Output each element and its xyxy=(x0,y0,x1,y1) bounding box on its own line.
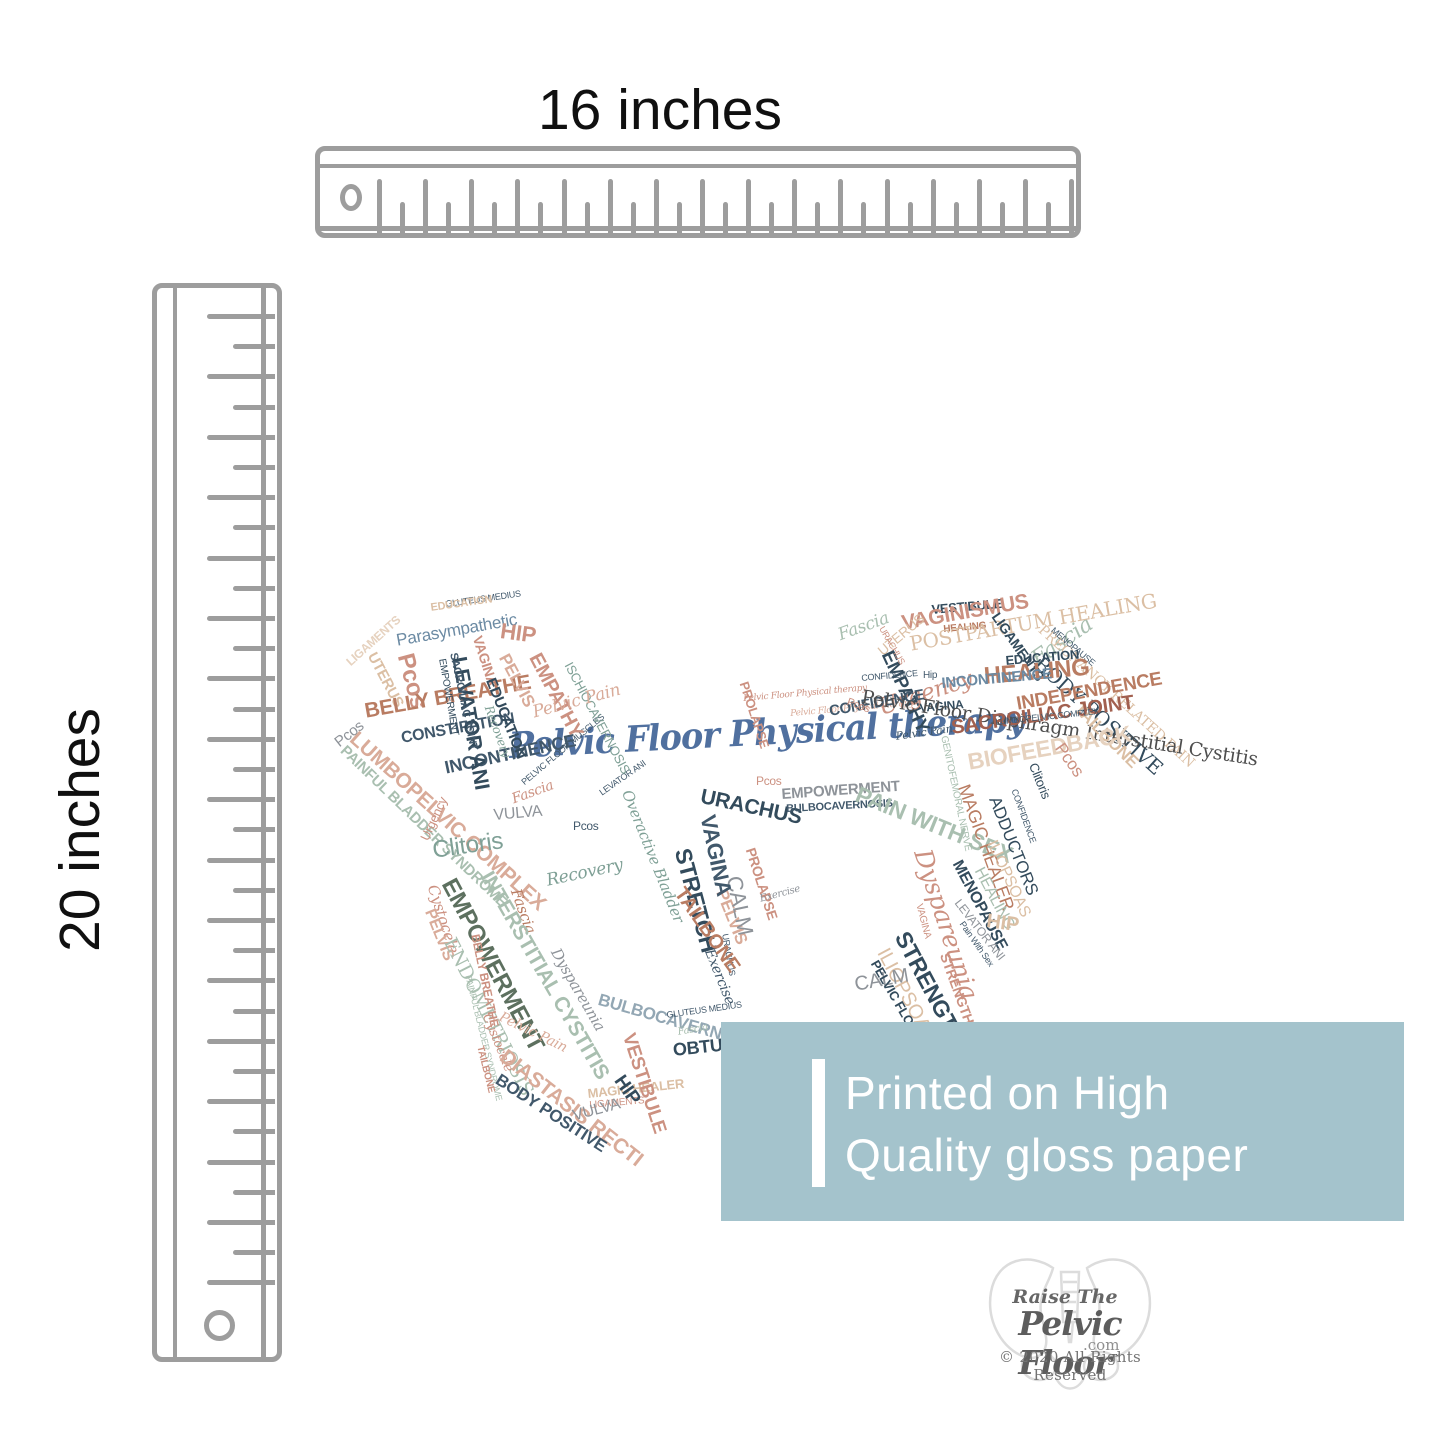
height-dimension-label: 20 inches xyxy=(52,708,109,952)
ruler-tick xyxy=(1000,202,1005,237)
product-size-guide: 16 inches 20 inches Pelvic Floor Physica… xyxy=(0,0,1445,1445)
banner-text: Printed on High Quality gloss paper xyxy=(845,1062,1248,1186)
ruler-rail-line xyxy=(320,226,1076,231)
ruler-tick xyxy=(631,202,636,237)
cloud-word: EDUCATION xyxy=(430,594,493,614)
ruler-tick xyxy=(207,978,275,983)
horizontal-ruler-icon xyxy=(315,146,1081,238)
vertical-ruler-icon xyxy=(152,283,282,1362)
cloud-word: Pcos xyxy=(756,775,781,787)
ruler-tick xyxy=(769,202,774,237)
ruler-tick xyxy=(207,495,275,500)
ruler-tick xyxy=(207,1280,275,1285)
ruler-tick xyxy=(792,179,797,237)
ruler-tick xyxy=(233,1009,275,1014)
ruler-hole xyxy=(340,184,362,211)
ruler-tick xyxy=(207,556,275,561)
ruler-tick xyxy=(908,202,913,237)
ruler-tick xyxy=(207,797,275,802)
ruler-tick xyxy=(233,707,275,712)
cloud-word: VULVA xyxy=(493,804,543,824)
ruler-tick xyxy=(700,179,705,237)
ruler-tick xyxy=(1069,179,1074,237)
ruler-tick xyxy=(815,202,820,237)
ruler-tick xyxy=(723,202,728,237)
ruler-tick xyxy=(446,202,451,237)
ruler-tick xyxy=(233,586,275,591)
ruler-tick xyxy=(469,179,474,237)
logo-copyright: © 2020 All Rights Reserved xyxy=(975,1348,1165,1384)
ruler-tick xyxy=(207,1039,275,1044)
ruler-tick xyxy=(207,737,275,742)
ruler-tick xyxy=(233,344,275,349)
ruler-tick xyxy=(954,202,959,237)
ruler-tick xyxy=(746,179,751,237)
ruler-edge-line xyxy=(173,288,177,1357)
ruler-tick xyxy=(515,179,520,237)
cloud-word: Clitoris xyxy=(1027,761,1053,800)
ruler-tick xyxy=(207,314,275,319)
ruler-tick xyxy=(207,676,275,681)
ruler-tick xyxy=(233,1250,275,1255)
cloud-word: HIP xyxy=(499,620,537,647)
ruler-tick xyxy=(492,202,497,237)
ruler-tick xyxy=(585,202,590,237)
cloud-word: Recovery xyxy=(545,857,624,890)
ruler-tick xyxy=(1023,179,1028,237)
ruler-tick xyxy=(608,179,613,237)
brand-logo: Raise The Pelvic Floor™ .com © 2020 All … xyxy=(975,1250,1195,1410)
ruler-tick xyxy=(838,179,843,237)
ruler-tick xyxy=(1046,202,1051,237)
ruler-tick xyxy=(233,465,275,470)
ruler-rail-line xyxy=(261,288,266,1357)
width-dimension-label: 16 inches xyxy=(400,82,920,139)
cloud-word: Hip xyxy=(923,671,937,681)
banner-accent-bar xyxy=(812,1059,825,1187)
ruler-tick xyxy=(233,525,275,530)
banner-line-2: Quality gloss paper xyxy=(845,1124,1248,1186)
ruler-tick xyxy=(377,179,382,237)
ruler-tick xyxy=(562,179,567,237)
ruler-tick xyxy=(207,918,275,923)
banner-line-1: Printed on High xyxy=(845,1062,1248,1124)
ruler-tick xyxy=(885,179,890,237)
ruler-tick xyxy=(207,435,275,440)
ruler-edge-line xyxy=(320,164,1076,168)
ruler-tick xyxy=(233,767,275,772)
ruler-tick xyxy=(977,179,982,237)
ruler-tick xyxy=(233,888,275,893)
cloud-word: Fascia xyxy=(510,778,555,806)
ruler-tick xyxy=(207,1220,275,1225)
ruler-tick xyxy=(654,179,659,237)
ruler-tick xyxy=(233,1129,275,1134)
ruler-tick xyxy=(233,827,275,832)
gloss-paper-banner: Printed on High Quality gloss paper xyxy=(721,1022,1404,1221)
ruler-tick xyxy=(207,1160,275,1165)
ruler-tick xyxy=(233,646,275,651)
ruler-tick xyxy=(400,202,405,237)
ruler-tick xyxy=(233,1190,275,1195)
ruler-tick xyxy=(861,202,866,237)
ruler-tick xyxy=(423,179,428,237)
ruler-hole xyxy=(204,1310,235,1341)
ruler-tick xyxy=(207,1099,275,1104)
ruler-tick xyxy=(677,202,682,237)
ruler-tick xyxy=(931,179,936,237)
ruler-tick xyxy=(207,616,275,621)
cloud-word: Pcos xyxy=(573,820,598,832)
cloud-word: HIP xyxy=(985,911,1020,935)
ruler-tick xyxy=(233,948,275,953)
ruler-tick xyxy=(207,374,275,379)
ruler-tick xyxy=(233,405,275,410)
ruler-tick xyxy=(207,858,275,863)
ruler-tick xyxy=(538,202,543,237)
ruler-tick xyxy=(233,1069,275,1074)
